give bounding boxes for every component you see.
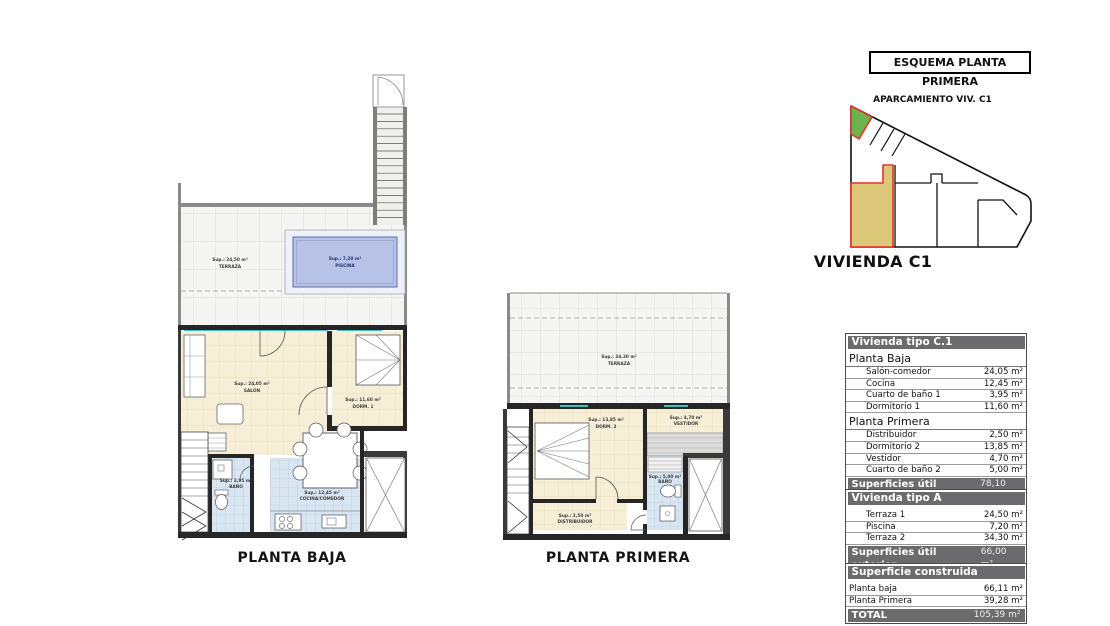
- plan-planta-baja: Sup.: 7,20 m² PISCINA Sup.: 24,50 m² TER…: [172, 74, 412, 544]
- label-distribuidor-sup: Sup.: 2,50 m²: [559, 513, 592, 519]
- coffee-table: [208, 433, 226, 451]
- table-row: Dormitorio 1 11,60 m²: [846, 402, 1026, 414]
- label-salon: SALÓN: [244, 387, 261, 394]
- table-header: Vivienda tipo A: [848, 492, 1025, 505]
- bathroom-p1: Sup.: 5,00 m² BAÑO: [647, 456, 683, 530]
- row-value: 24,05 m²: [984, 368, 1023, 378]
- stairs-bottom: [181, 432, 208, 540]
- label-dorm2-sup: Sup.: 13,85 m²: [588, 417, 624, 423]
- table-row: Piscina 7,20 m²: [846, 522, 1026, 534]
- row-value: 24,50 m²: [984, 511, 1023, 521]
- row-value: 4,70 m²: [989, 455, 1023, 465]
- section-title: Planta Primera: [846, 413, 1026, 430]
- row-value: 11,60 m²: [984, 403, 1023, 413]
- floorplan-sheet: { "plans": { "planta_baja": { "title": "…: [0, 0, 1110, 626]
- table-row: Cuarto de baño 1 3,95 m²: [846, 390, 1026, 402]
- footer-value: 105,39 m²: [974, 609, 1021, 622]
- label-dorm1: DORM. 1: [353, 404, 374, 410]
- row-label: Dormitorio 1: [866, 403, 920, 413]
- table-row: Distribuidor 2,50 m²: [846, 430, 1026, 442]
- label-bano-sup: Sup.: 3,95 m²: [220, 478, 253, 484]
- table-row: Terraza 2 34,30 m²: [846, 533, 1026, 545]
- row-value: 12,45 m²: [984, 380, 1023, 390]
- row-value: 2,50 m²: [989, 431, 1023, 441]
- row-value: 7,20 m²: [989, 523, 1023, 533]
- label-distribuidor: DISTRIBUIDOR: [558, 519, 594, 525]
- table-header: Vivienda tipo C.1: [848, 336, 1025, 349]
- esquema-title-box: ESQUEMA PLANTA PRIMERA: [869, 51, 1031, 74]
- esquema-title: ESQUEMA PLANTA PRIMERA: [894, 56, 1006, 88]
- table-row: Planta baja 66,11 m²: [846, 584, 1026, 596]
- bed-dorm2: [535, 423, 589, 479]
- table-row: Terraza 1 24,50 m²: [846, 510, 1026, 522]
- row-label: Piscina: [866, 523, 896, 533]
- table-footer: TOTAL 105,39 m²: [848, 609, 1025, 622]
- row-label: Cocina: [866, 380, 895, 390]
- row-value: 39,28 m²: [984, 597, 1023, 607]
- row-label: Dormitorio 2: [866, 443, 920, 453]
- row-label: Planta baja: [849, 585, 897, 595]
- pool: Sup.: 7,20 m² PISCINA: [285, 230, 405, 294]
- row-label: Vestidor: [866, 455, 901, 465]
- table-row: Dormitorio 2 13,85 m²: [846, 442, 1026, 454]
- bed-dorm1: [356, 335, 400, 385]
- row-value: 34,30 m²: [984, 534, 1023, 544]
- label-salon-sup: Sup.: 24,05 m²: [234, 381, 270, 387]
- label-piscina: PISCINA: [335, 263, 355, 269]
- table-row: Cuarto de baño 2 5,00 m²: [846, 465, 1026, 477]
- label-vestidor-sup: Sup.: 4,70 m²: [670, 415, 703, 421]
- row-value: 5,00 m²: [989, 466, 1023, 476]
- section-title: Planta Baja: [846, 350, 1026, 367]
- row-label: Cuarto de baño 2: [866, 466, 941, 476]
- footer-label: TOTAL: [852, 609, 887, 622]
- label-cocina-sup: Sup.: 12,45 m²: [304, 490, 340, 496]
- label-dorm1-sup: Sup.: 11,60 m²: [345, 397, 381, 403]
- plan-planta-primera: Sup.: 34,30 m² TERRAZA Sup.: 13,85 m² DO…: [503, 287, 733, 547]
- ground-floor-rooms: Sup.: 11,60 m² DORM. 1 Sup.: 24,05 m² SA…: [178, 325, 407, 540]
- table-row: Vestidor 4,70 m²: [846, 454, 1026, 466]
- sofa: [184, 335, 205, 397]
- table-exterior-surfaces: Vivienda tipo A Terraza 1 24,50 m² Pisci…: [845, 489, 1027, 575]
- table-header: Superficie construida: [848, 566, 1025, 579]
- esquema-diagram: [845, 103, 1040, 253]
- armchair: [217, 404, 243, 424]
- terrace-area-p1: Sup.: 34,30 m² TERRAZA: [507, 293, 730, 403]
- row-value: 3,95 m²: [989, 391, 1023, 401]
- row-label: Distribuidor: [866, 431, 916, 441]
- table-interior-surfaces: Vivienda tipo C.1 Planta Baja Salón-come…: [845, 333, 1027, 507]
- row-label: Terraza 2: [866, 534, 905, 544]
- label-terraza-sup: Sup.: 24,50 m²: [212, 257, 248, 263]
- row-label: Terraza 1: [866, 511, 905, 521]
- table-row: Planta Primera 39,28 m²: [846, 596, 1026, 608]
- label-bano: BAÑO: [229, 483, 243, 490]
- wardrobe: [647, 433, 723, 456]
- label-cocina: COCINA/COMEDOR: [300, 496, 345, 502]
- label-terraza2: TERRAZA: [608, 361, 631, 367]
- label-vestidor: VESTIDOR: [674, 421, 699, 427]
- row-label: Cuarto de baño 1: [866, 391, 941, 401]
- bathroom-gf: Sup.: 3,95 m² BAÑO: [208, 454, 254, 532]
- table-row: Cocina 12,45 m²: [846, 379, 1026, 391]
- label-terraza2-sup: Sup.: 34,30 m²: [601, 354, 637, 360]
- label-dorm2: DORM. 2: [596, 424, 617, 430]
- row-value: 66,11 m²: [984, 585, 1023, 595]
- label-terraza: TERRAZA: [219, 264, 242, 270]
- first-floor-rooms: Sup.: 13,85 m² DORM. 2 Sup.: 4,70 m² VES…: [503, 409, 730, 540]
- plan-title-planta-primera: PLANTA PRIMERA: [503, 550, 733, 566]
- plan-title-planta-baja: PLANTA BAJA: [172, 550, 412, 566]
- vivienda-label: VIVIENDA C1: [798, 252, 948, 271]
- stairs-top: [373, 75, 407, 225]
- row-value: 13,85 m²: [984, 443, 1023, 453]
- stairs-p1: [507, 427, 529, 534]
- garage-bay: [360, 431, 407, 536]
- label-bano2: BAÑO: [658, 478, 672, 485]
- row-label: Salón-comedor: [866, 368, 931, 378]
- label-piscina-sup: Sup.: 7,20 m²: [329, 256, 362, 262]
- table-built-surface: Superficie construida Planta baja 66,11 …: [845, 563, 1027, 624]
- table-row: Salón-comedor 24,05 m²: [846, 367, 1026, 379]
- row-label: Planta Primera: [849, 597, 912, 607]
